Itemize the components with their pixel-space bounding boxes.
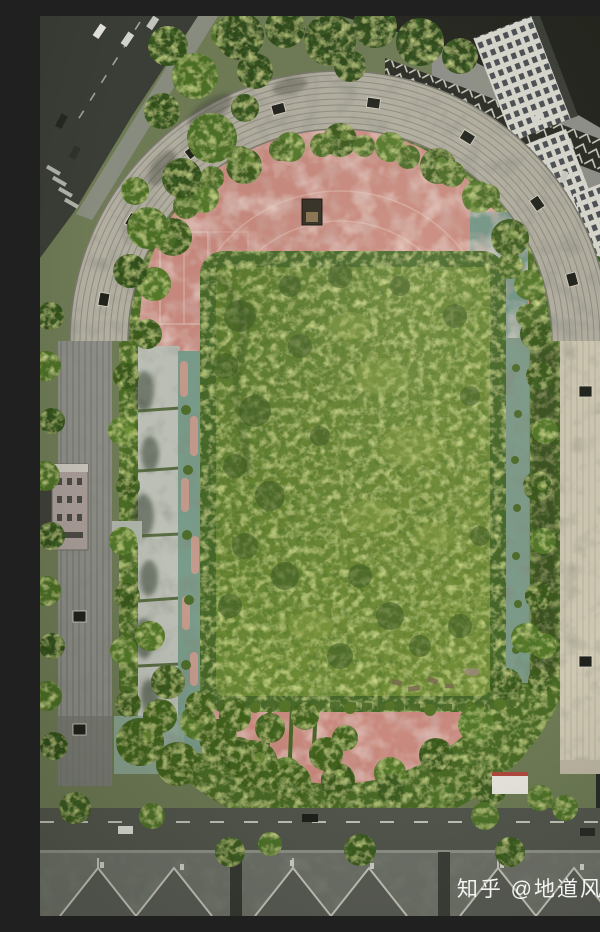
aerial-photo-canvas: 知乎 @地道风物 bbox=[40, 16, 600, 916]
vignette bbox=[40, 16, 600, 916]
watermark: 知乎 @地道风物 bbox=[457, 878, 600, 901]
aerial-photo: 知乎 @地道风物 bbox=[40, 16, 600, 916]
